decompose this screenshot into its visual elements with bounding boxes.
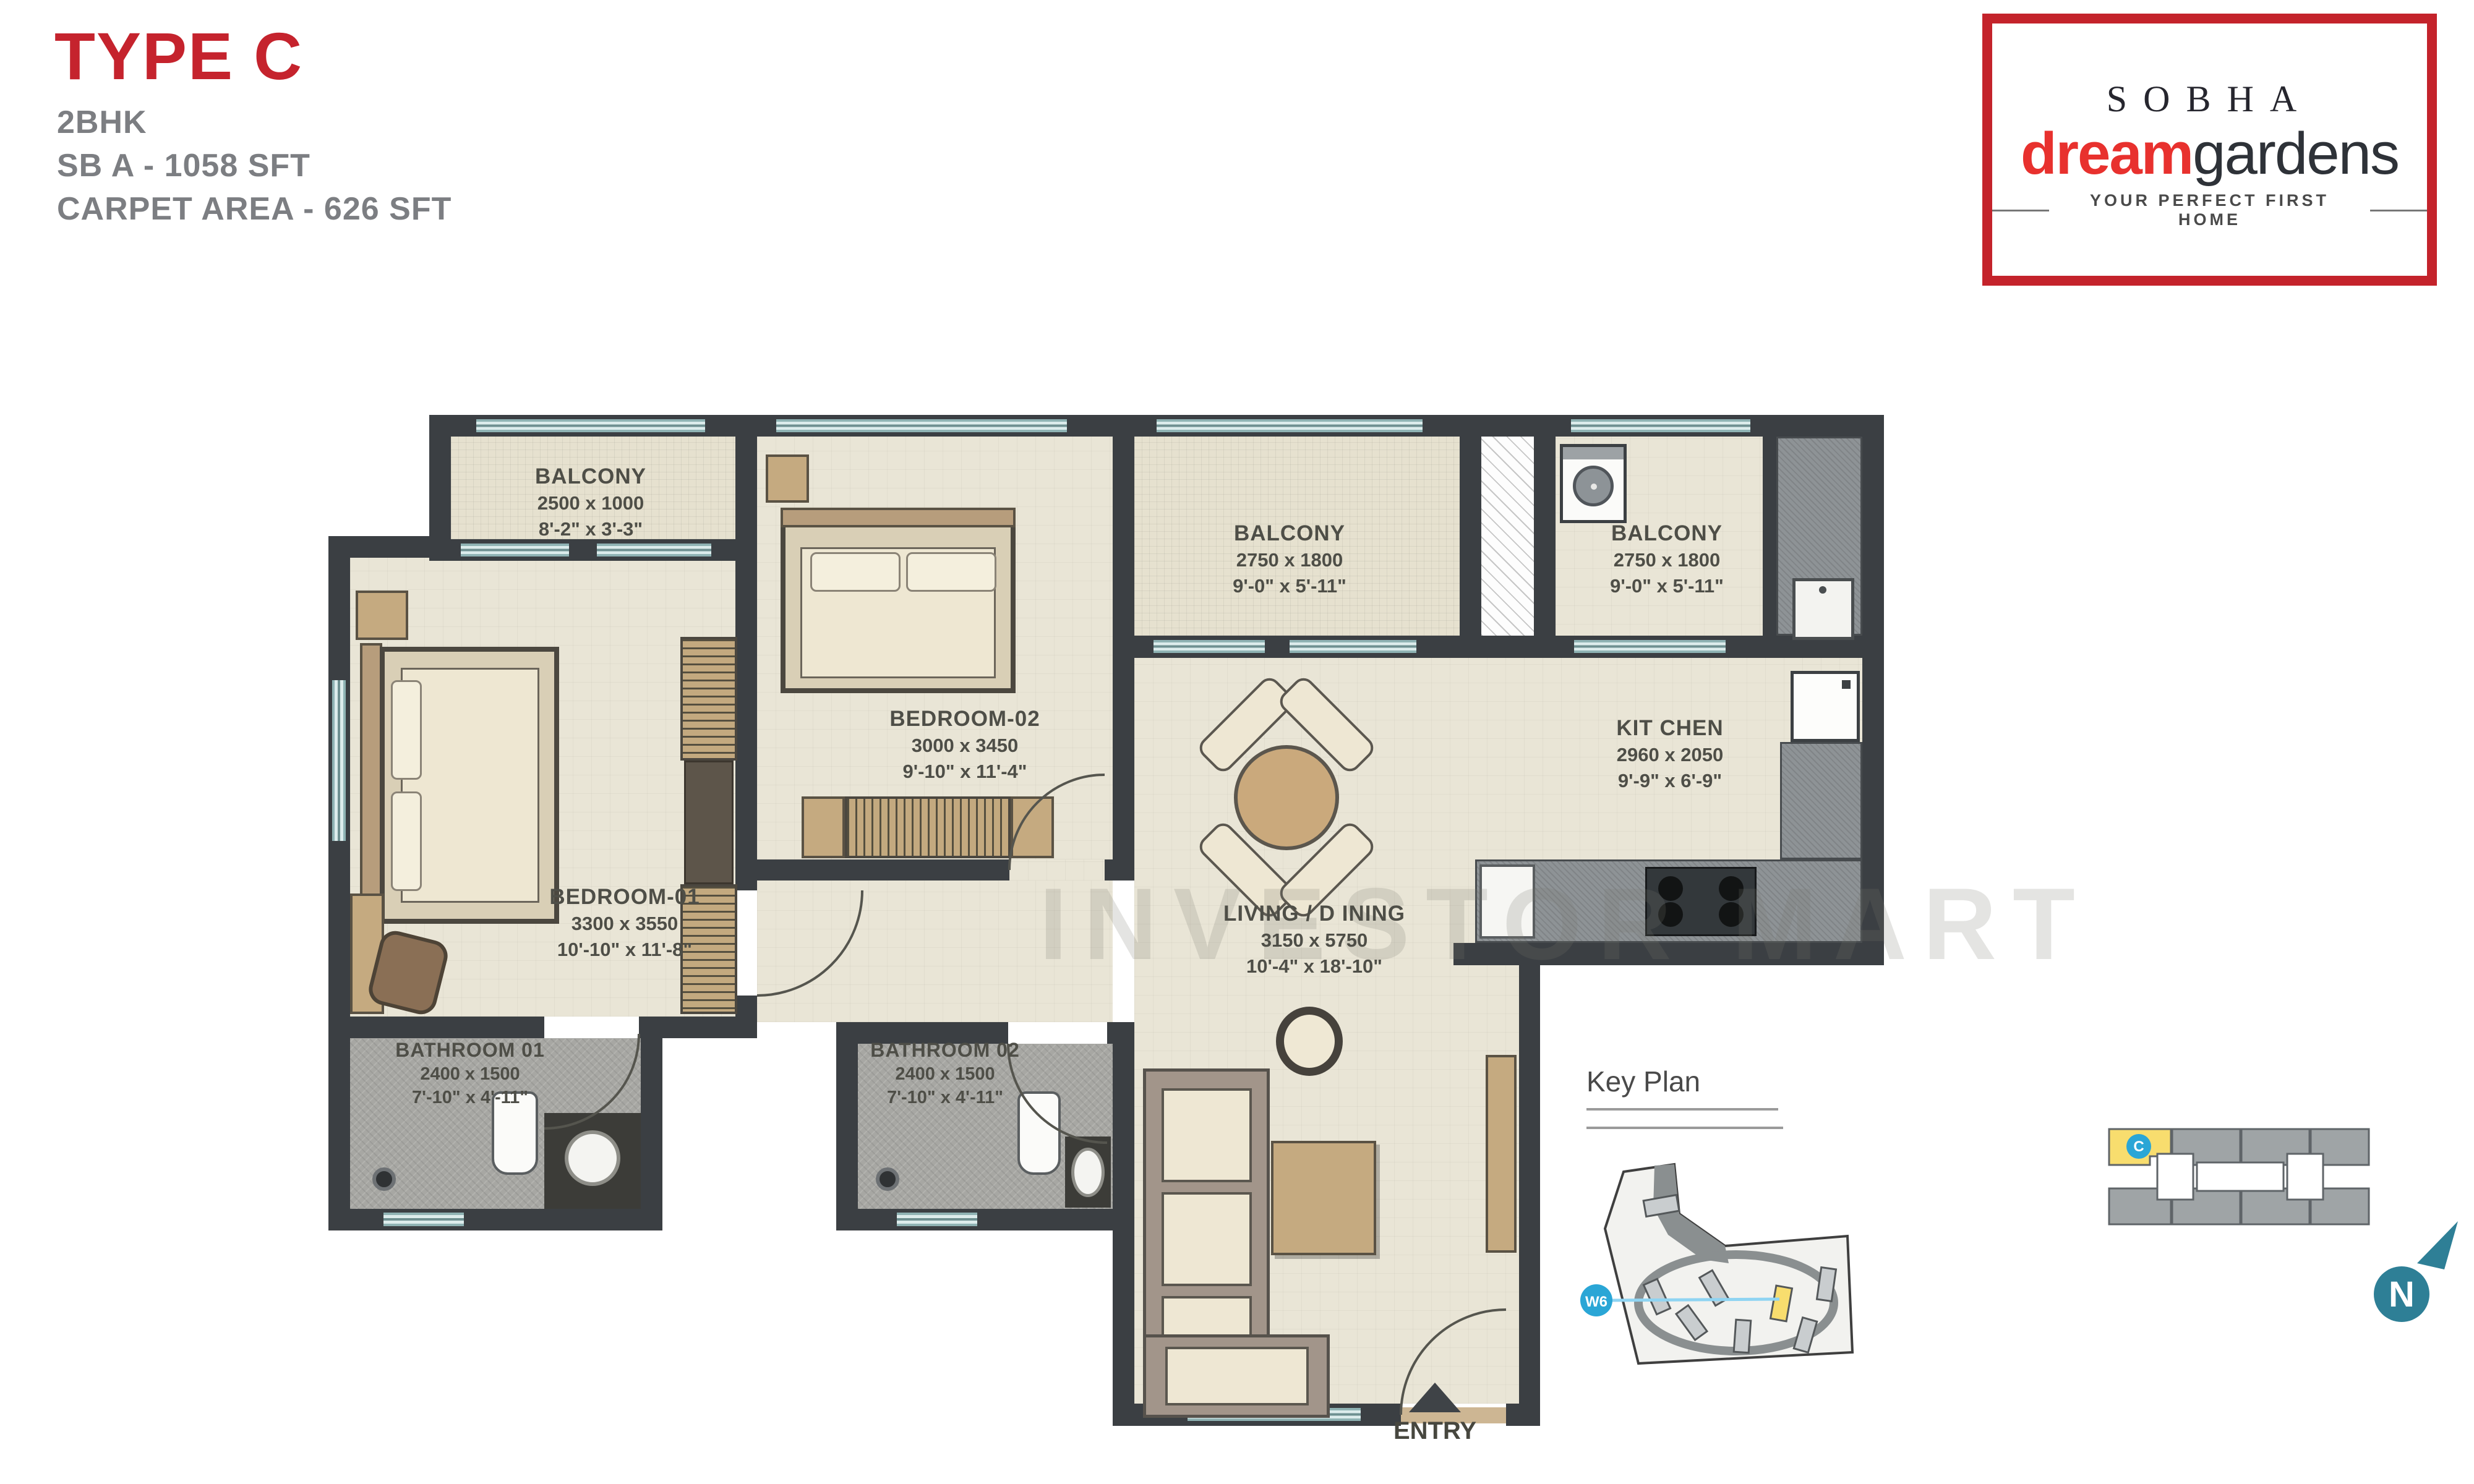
washing-machine-panel: [1563, 447, 1624, 459]
marker-leader-line: [1607, 1299, 1779, 1300]
room-label-balcony3: BALCONY 2750 x 1800 9'-0" x 5'-11": [1610, 519, 1724, 599]
wall: [1763, 437, 1776, 636]
super-builtup-area: SB A - 1058 SFT: [57, 147, 310, 184]
window: [1154, 640, 1265, 653]
wash-basin: [565, 1130, 620, 1186]
vanity-counter: [1065, 1136, 1111, 1208]
bed2-pillow: [810, 552, 901, 592]
carpet-area: CARPET AREA - 626 SFT: [57, 190, 452, 228]
refrigerator: [1791, 671, 1860, 742]
window: [597, 544, 711, 556]
wash-basin: [1071, 1148, 1105, 1197]
bed2-pillow: [906, 552, 996, 592]
wall: [836, 1209, 1134, 1230]
page-title: TYPE C: [54, 17, 303, 95]
wall: [639, 1017, 757, 1038]
window: [476, 419, 705, 432]
key-plan-rule: [1586, 1108, 1778, 1111]
room-label-balcony1: BALCONY 2500 x 1000 8'-2" x 3'-3": [535, 463, 646, 542]
wardrobe-side-unit: [1011, 796, 1054, 858]
wardrobe-door-panel: [684, 761, 734, 884]
unit-config: 2BHK: [57, 104, 147, 141]
logo-tagline-row: YOUR PERFECT FIRST HOME: [1992, 191, 2427, 229]
wing-marker-label: W6: [1585, 1294, 1607, 1310]
fridge-handle: [1842, 680, 1851, 689]
north-indicator: N: [2374, 1266, 2429, 1322]
washing-machine: [1560, 444, 1627, 523]
wall: [1506, 1404, 1540, 1426]
window: [1290, 640, 1416, 653]
wall: [1460, 415, 1481, 658]
bed1-headboard: [360, 643, 382, 927]
service-shaft: [1481, 437, 1534, 636]
faucet: [1819, 586, 1826, 594]
key-plan-map: W6: [1580, 1135, 1871, 1382]
wall: [1107, 1022, 1134, 1044]
wall: [641, 1038, 662, 1230]
window: [383, 1213, 464, 1226]
room-label-kitchen: KIT CHEN 2960 x 2050 9'-9" x 6'-9": [1616, 714, 1723, 794]
logo-dreamgardens: dreamgardens: [1992, 123, 2427, 185]
tagline-rule-right: [2370, 210, 2427, 211]
wall: [328, 1017, 544, 1038]
room-label-bathroom2: BATHROOM 02 2400 x 1500 7'-10" x 4'-11": [870, 1038, 1020, 1109]
key-plan-building: [1734, 1320, 1751, 1353]
console-cabinet: [1486, 1055, 1517, 1253]
brand-logo: SOBHA dreamgardens YOUR PERFECT FIRST HO…: [1982, 14, 2437, 286]
bed1-pillow: [391, 791, 422, 891]
unit-marker-label: C: [2133, 1138, 2144, 1155]
key-plan-rule: [1586, 1127, 1783, 1129]
wall: [328, 1209, 662, 1230]
floor-plate-core: [2157, 1154, 2193, 1200]
wall: [735, 415, 757, 890]
north-arrow: [2417, 1221, 2458, 1269]
bed2-headboard: [781, 508, 1016, 527]
nightstand: [356, 591, 408, 640]
north-arrow-icon: [2406, 1215, 2468, 1274]
wardrobe: [845, 796, 1011, 858]
wardrobe: [680, 637, 737, 761]
floor-plate-core: [2287, 1154, 2323, 1200]
logo-tagline: YOUR PERFECT FIRST HOME: [2060, 191, 2359, 229]
floor-plan-page: TYPE C 2BHK SB A - 1058 SFT CARPET AREA …: [0, 0, 2474, 1484]
wardrobe-side-unit: [802, 796, 845, 858]
logo-sobha: SOBHA: [1992, 78, 2427, 121]
window: [1157, 419, 1423, 432]
shower-drain: [876, 1167, 899, 1191]
room-label-living: LIVING / D INING 3150 x 5750 10'-4" x 18…: [1223, 900, 1405, 979]
entry-label: ENTRY: [1393, 1417, 1476, 1445]
vanity-counter: [544, 1113, 641, 1209]
wall: [836, 1022, 858, 1230]
sofa-cushion: [1162, 1088, 1252, 1182]
window: [897, 1213, 977, 1226]
utility-sink: [1792, 578, 1854, 640]
wall: [1519, 965, 1540, 1426]
key-plan-building: [1817, 1268, 1836, 1302]
toilet: [1017, 1091, 1061, 1175]
room-label-bedroom2: BEDROOM-02 3000 x 3450 9'-10" x 11'-4": [889, 705, 1040, 785]
tagline-rule-left: [1992, 210, 2049, 211]
watermark: INVESTOR MART: [1039, 866, 1967, 983]
washing-machine-drum: [1573, 466, 1614, 506]
wall: [1534, 415, 1556, 658]
floor-plate-corridor: [2197, 1162, 2284, 1191]
wall: [328, 536, 350, 1230]
sofa-cushion: [1165, 1347, 1309, 1405]
shower-drain: [372, 1167, 396, 1191]
window: [461, 544, 569, 556]
dining-table: [1234, 745, 1339, 850]
logo-gardens: gardens: [2193, 121, 2399, 187]
accent-chair: [1276, 1007, 1343, 1076]
room-label-balcony2: BALCONY 2750 x 1800 9'-0" x 5'-11": [1233, 519, 1346, 599]
nightstand: [766, 454, 809, 503]
window: [1571, 419, 1750, 432]
wall: [757, 859, 1009, 881]
entry-arrow-icon: [1409, 1383, 1461, 1412]
kitchen-counter-right: [1780, 742, 1862, 859]
sofa-cushion: [1162, 1192, 1252, 1286]
logo-dream: dream: [2021, 121, 2193, 187]
window: [332, 680, 346, 841]
key-plan-title: Key Plan: [1586, 1065, 1700, 1098]
coffee-table: [1271, 1141, 1376, 1255]
floor-plate-diagram: C: [2103, 1124, 2375, 1229]
bed1-pillow: [391, 680, 422, 780]
drum-center: [1591, 484, 1597, 490]
room-label-bedroom1: BEDROOM-01 3300 x 3550 10'-10" x 11'-8": [549, 883, 700, 963]
window: [776, 419, 1067, 432]
window: [1574, 640, 1726, 653]
room-label-bathroom1: BATHROOM 01 2400 x 1500 7'-10" x 4'-11": [395, 1038, 545, 1109]
